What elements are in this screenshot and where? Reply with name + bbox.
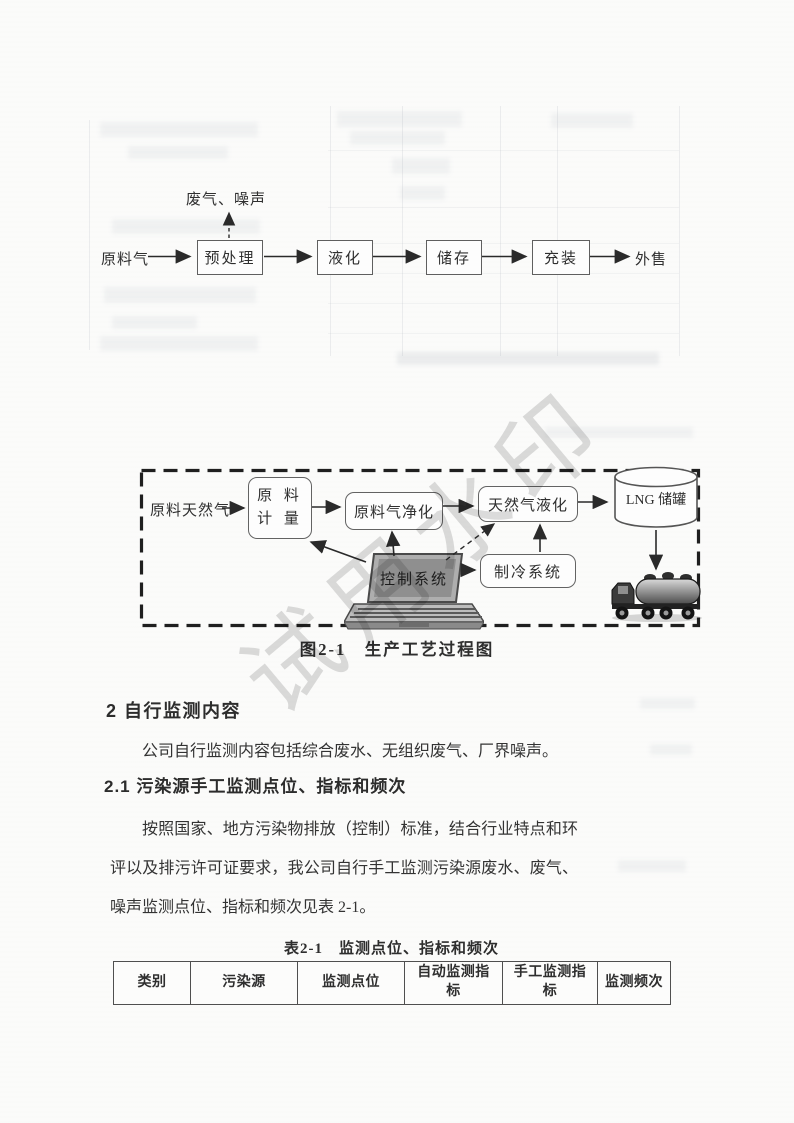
header-monitoring-point: 监测点位 <box>298 962 405 1005</box>
section-heading-2: 2 自行监测内容 <box>106 697 241 723</box>
header-category: 类别 <box>114 962 191 1005</box>
header-frequency: 监测频次 <box>598 962 671 1005</box>
figure-caption: 图2-1 生产工艺过程图 <box>0 636 794 660</box>
metering-line2: 计 量 <box>257 508 303 531</box>
lng-tank-label: LNG 储罐 <box>626 492 686 508</box>
diagram-metering-box: 原 料 计 量 <box>248 477 312 539</box>
flow-step-filling: 充装 <box>532 240 590 275</box>
header-auto-indicators: 自动监测指标 <box>405 962 503 1005</box>
control-system-label: 控制系统 <box>380 571 448 588</box>
table-caption: 表2-1 监测点位、指标和频次 <box>113 937 670 958</box>
flow-step-liquefaction: 液化 <box>317 240 373 275</box>
diagram-refrigeration-box: 制冷系统 <box>480 554 576 588</box>
table-header-row: 类别 污染源 监测点位 自动监测指标 手工监测指标 监测频次 <box>114 962 671 1005</box>
header-manual-indicators: 手工监测指标 <box>503 962 598 1005</box>
paragraph-monitoring-basis: 按照国家、地方污染物排放（控制）标准，结合行业特点和环评以及排污许可证要求，我公… <box>110 810 578 927</box>
monitoring-table: 类别 污染源 监测点位 自动监测指标 手工监测指标 监测频次 <box>113 961 671 1005</box>
tanker-truck <box>610 566 705 624</box>
flow-emission-label: 废气、噪声 <box>186 188 266 209</box>
diagram-purification-box: 原料气净化 <box>345 492 443 530</box>
section-heading-2-1: 2.1 污染源手工监测点位、指标和频次 <box>104 772 406 797</box>
lng-tank-cylinder: LNG 储罐 <box>612 466 700 530</box>
header-pollution-source: 污染源 <box>191 962 298 1005</box>
flow-output-label: 外售 <box>635 248 667 269</box>
diagram-liquefaction-box: 天然气液化 <box>478 486 578 522</box>
document-page: 废气、噪声 原料气 预处理 液化 储存 充装 外售 原料天然气 原 料 计 量 … <box>0 0 794 1123</box>
flow-step-storage: 储存 <box>426 240 482 275</box>
metering-line1: 原 料 <box>257 485 303 508</box>
diagram-input-label: 原料天然气 <box>150 499 230 520</box>
paragraph-monitoring-scope: 公司自行监测内容包括综合废水、无组织废气、厂界噪声。 <box>110 740 578 764</box>
control-system-laptop: 控制系统 <box>344 552 484 632</box>
flow-input-label: 原料气 <box>101 248 149 269</box>
flow-step-pretreatment: 预处理 <box>197 240 263 275</box>
